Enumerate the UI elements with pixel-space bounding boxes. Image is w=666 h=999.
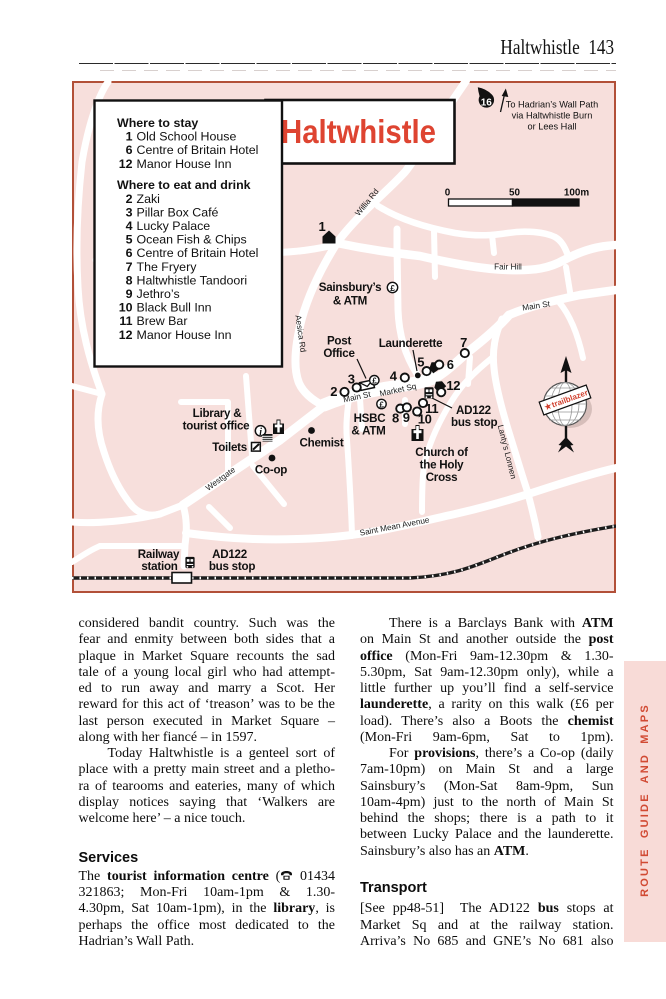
svg-text:9: 9 (126, 287, 133, 301)
svg-text:Haltwhistle Tandoori: Haltwhistle Tandoori (137, 273, 248, 287)
svg-text:Manor House Inn: Manor House Inn (137, 328, 232, 342)
svg-text:Launderette: Launderette (379, 337, 443, 350)
svg-text:bus stop: bus stop (209, 560, 255, 573)
svg-text:HSBC: HSBC (354, 412, 387, 425)
svg-text:bus stop: bus stop (451, 416, 497, 429)
svg-text:Cross: Cross (426, 471, 458, 484)
svg-text:Library &: Library & (193, 407, 243, 420)
svg-text:3: 3 (126, 205, 133, 219)
svg-text:To Hadrian’s Wall Path: To Hadrian’s Wall Path (506, 100, 598, 110)
svg-text:6: 6 (126, 143, 133, 157)
svg-text:2: 2 (330, 384, 337, 399)
svg-text:tourist office: tourist office (183, 420, 251, 433)
svg-text:Ocean Fish & Chips: Ocean Fish & Chips (137, 233, 247, 247)
svg-text:£: £ (390, 283, 395, 293)
svg-text:Post: Post (327, 335, 352, 348)
svg-text:Brew Bar: Brew Bar (137, 314, 188, 328)
svg-text:9: 9 (403, 410, 410, 425)
svg-text:5: 5 (126, 233, 133, 247)
svg-text:7: 7 (126, 260, 133, 274)
svg-text:Co-op: Co-op (255, 464, 287, 477)
svg-text:16: 16 (481, 97, 493, 108)
svg-text:Haltwhistle: Haltwhistle (281, 113, 436, 150)
svg-text:Jethro’s: Jethro’s (137, 287, 180, 301)
svg-text:Where to stay: Where to stay (117, 116, 198, 130)
svg-text:50: 50 (509, 188, 520, 199)
svg-text:Sainsbury’s: Sainsbury’s (319, 281, 382, 294)
svg-text:Toilets: Toilets (212, 441, 247, 454)
svg-text:12: 12 (119, 328, 133, 342)
svg-text:12: 12 (446, 378, 460, 393)
svg-text:Office: Office (323, 347, 355, 360)
svg-text:1: 1 (319, 219, 326, 234)
svg-text:Zaki: Zaki (137, 192, 160, 206)
svg-text:or Lees Hall: or Lees Hall (527, 122, 576, 132)
svg-text:4: 4 (126, 219, 133, 233)
svg-text:Centre of Britain Hotel: Centre of Britain Hotel (137, 246, 259, 260)
svg-text:8: 8 (126, 273, 133, 287)
svg-text:8: 8 (392, 410, 399, 425)
svg-text:12: 12 (119, 157, 133, 171)
svg-text:station: station (141, 560, 177, 573)
svg-text:Chemist: Chemist (300, 437, 344, 450)
svg-text:2: 2 (126, 192, 133, 206)
svg-text:The Fryery: The Fryery (137, 260, 198, 274)
svg-text:Black Bull Inn: Black Bull Inn (137, 301, 212, 315)
svg-text:Where to eat and drink: Where to eat and drink (117, 178, 251, 192)
svg-text:Pillar Box Café: Pillar Box Café (137, 205, 219, 219)
svg-text:0: 0 (445, 188, 451, 199)
svg-text:6: 6 (447, 357, 454, 372)
svg-text:Centre of Britain Hotel: Centre of Britain Hotel (137, 143, 259, 157)
svg-text:1: 1 (126, 130, 133, 144)
svg-text:Lucky Palace: Lucky Palace (137, 219, 211, 233)
svg-text:Manor House Inn: Manor House Inn (137, 157, 232, 171)
svg-text:11: 11 (119, 314, 132, 328)
svg-text:via Haltwhistle Burn: via Haltwhistle Burn (512, 111, 593, 121)
svg-text:Church of: Church of (415, 446, 468, 459)
svg-text:& ATM: & ATM (351, 425, 385, 438)
svg-text:& ATM: & ATM (333, 295, 367, 308)
svg-text:Old School House: Old School House (137, 130, 237, 144)
svg-text:Fair Hill: Fair Hill (494, 263, 522, 272)
svg-text:the Holy: the Holy (420, 459, 465, 472)
svg-text:6: 6 (126, 246, 133, 260)
svg-text:100m: 100m (564, 188, 589, 199)
svg-text:7: 7 (460, 335, 467, 350)
svg-text:10: 10 (418, 412, 432, 427)
svg-text:10: 10 (119, 301, 133, 315)
svg-text:4: 4 (390, 369, 398, 384)
